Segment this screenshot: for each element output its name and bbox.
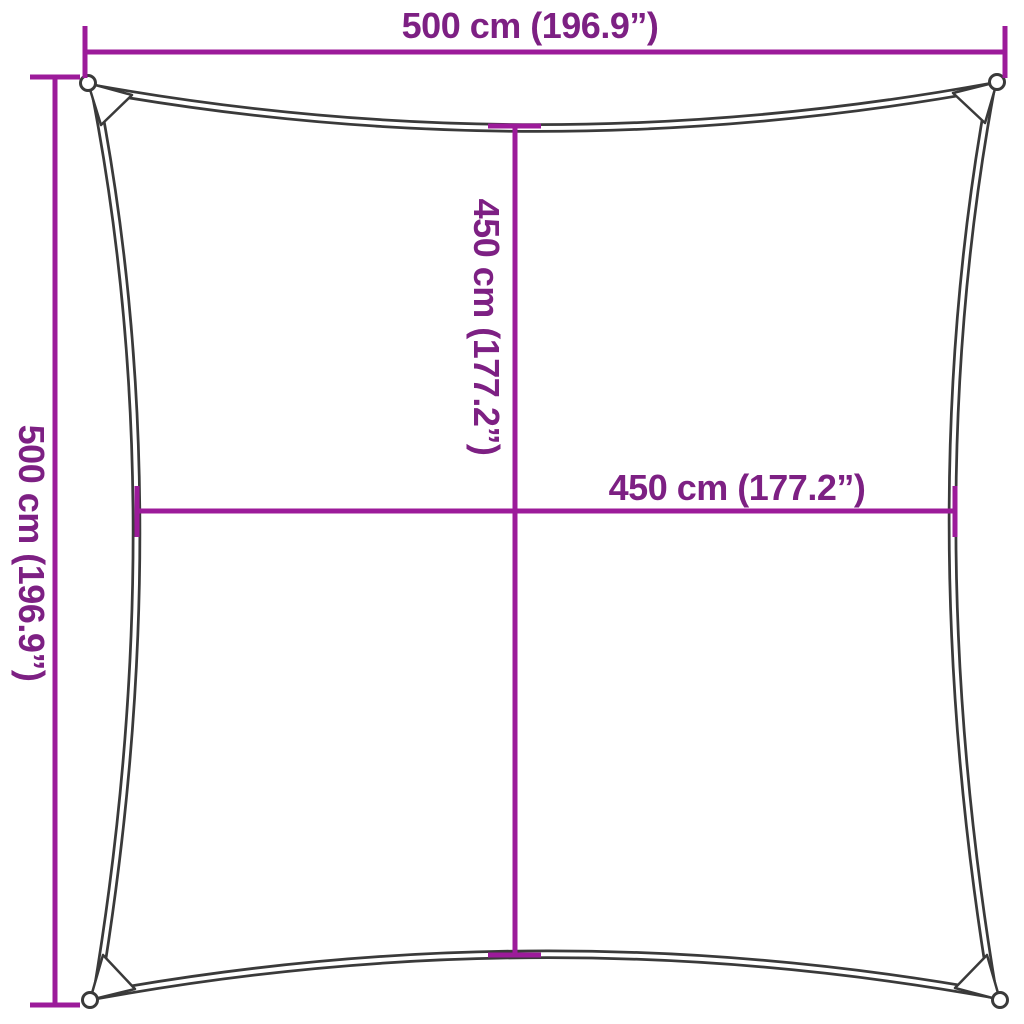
- sail-outline: [95, 87, 993, 995]
- sail-top-edge-core: [97, 87, 989, 128]
- grommet-ring-bottom-left: [83, 993, 98, 1008]
- label-top-width: 500 cm (196.9”): [402, 8, 659, 44]
- shade-sail-dimension-diagram: 500 cm (196.9”) 500 cm (196.9”) 450 cm (…: [0, 0, 1024, 1024]
- label-inner-width: 450 cm (177.2”): [609, 470, 866, 506]
- sail-bottom-edge-core: [99, 954, 991, 995]
- grommet-ring-bottom-right: [993, 993, 1008, 1008]
- sail-corner-details: [81, 75, 1008, 1008]
- sail-left-edge-core: [95, 91, 137, 993]
- label-left-height: 500 cm (196.9”): [13, 425, 49, 682]
- grommet-ring-top-right: [990, 75, 1005, 90]
- label-inner-height: 450 cm (177.2”): [468, 199, 504, 456]
- diagram-canvas: [0, 0, 1024, 1024]
